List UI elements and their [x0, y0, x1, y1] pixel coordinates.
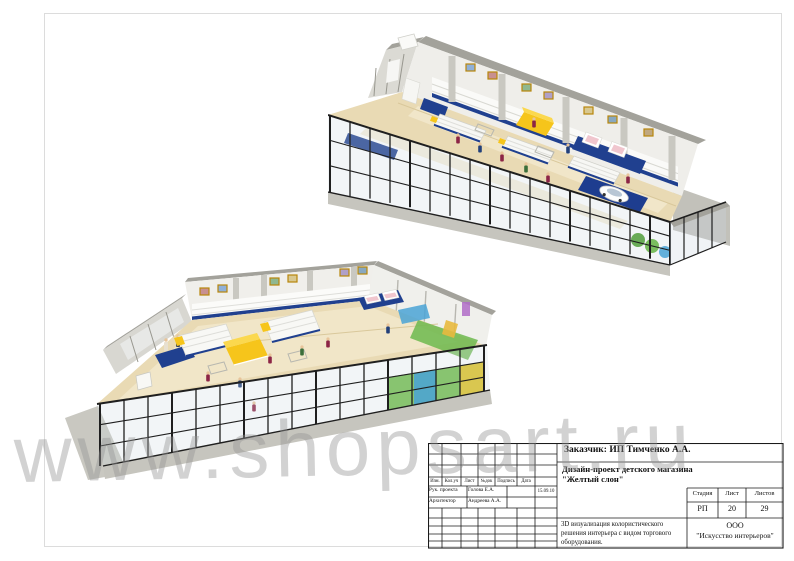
stage-value: РП [687, 505, 718, 513]
sheet-number: 20 [718, 505, 746, 513]
project-title-line1: Дизайн-проект детского магазина [562, 465, 778, 474]
col-header-data: Дата [517, 479, 535, 484]
sheet-header: Лист [718, 491, 746, 498]
sheets-total-header: Листов [746, 491, 783, 498]
col-header-list: Лист [461, 479, 478, 484]
col-header-koluch: Кол.уч [442, 479, 461, 484]
project-title-line2: "Желтый слон" [562, 475, 778, 484]
drawing-sheet: www.shopsart.ru [0, 0, 794, 561]
title-block: Заказчик: ИП Тимченко А.А. Дизайн-проект… [428, 443, 783, 548]
signature-name-2: Андреева А.А. [468, 499, 507, 505]
col-header-podpis: Подпись [495, 479, 517, 484]
customer-label: Заказчик: ИП Тимченко А.А. [564, 446, 778, 456]
signature-role-2: Архитектор [429, 499, 467, 505]
col-header-izm: Изм. [428, 479, 442, 484]
sheet-description: 3D визуализация колористического решения… [561, 521, 683, 548]
company-name-line2: "Искусство интерьеров" [687, 532, 783, 540]
col-header-ndok: №док [478, 479, 495, 484]
signature-name-1: Голова Е.А. [468, 488, 507, 494]
company-name-line1: ООО [687, 522, 783, 530]
store-3d-view-top [328, 28, 730, 278]
stage-header: Стадия [687, 491, 718, 498]
sheets-total: 29 [746, 505, 783, 513]
signature-role-1: Рук. проекта [429, 488, 467, 494]
signature-date-1: 15.09.10 [535, 489, 557, 494]
